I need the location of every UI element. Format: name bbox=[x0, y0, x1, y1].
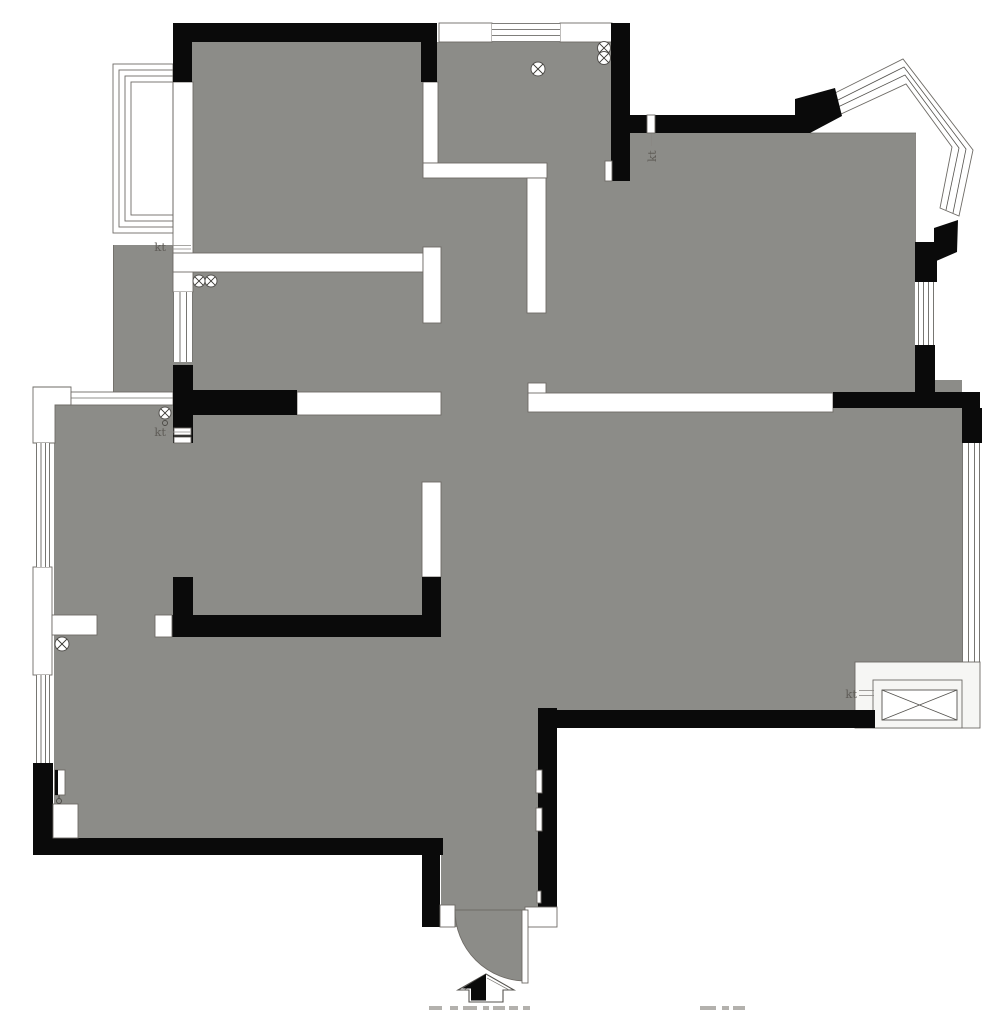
niche-southwest bbox=[53, 804, 78, 838]
floor-bedroom-2 bbox=[193, 253, 441, 392]
wall-entry-east bbox=[538, 708, 557, 907]
ac-label-top-right-group: kt bbox=[645, 150, 659, 162]
window-dining-east bbox=[962, 443, 980, 662]
window-bath-north bbox=[492, 23, 560, 42]
balcony-south-sill bbox=[71, 392, 173, 405]
wall-bedroom3-east bbox=[422, 482, 441, 577]
wall-bedroom2-east bbox=[423, 247, 441, 323]
wall-master-north bbox=[630, 115, 810, 133]
wall-master-east-lower bbox=[915, 345, 935, 392]
cropped-caption-marks bbox=[429, 1006, 745, 1010]
balcony-window bbox=[113, 64, 173, 233]
sleeve-master-north bbox=[647, 115, 655, 133]
wall-master-south bbox=[528, 393, 833, 412]
wall-bedroom2-south bbox=[173, 390, 297, 415]
floor-entry-corridor bbox=[441, 710, 538, 927]
wall-north-right-stub bbox=[421, 42, 437, 82]
ac-outdoor-unit bbox=[882, 690, 957, 720]
wall-north-left-stub bbox=[173, 42, 192, 82]
ac-label-bottom-right: kt bbox=[845, 687, 857, 701]
wall-bath-east bbox=[611, 23, 630, 181]
wall-hall-east bbox=[527, 178, 546, 313]
window-master-east bbox=[918, 282, 934, 345]
sleeve-bath-east bbox=[605, 161, 612, 181]
wall-bedroom3-south bbox=[172, 615, 441, 637]
pilaster-west-mid bbox=[33, 567, 52, 675]
drain-icon bbox=[205, 275, 217, 287]
wall-entry-west bbox=[422, 855, 440, 927]
floor-plan-page: kt kt kt kt bbox=[0, 0, 1000, 1010]
wall-bedroom3-north bbox=[297, 392, 441, 415]
ac-label-top-right: kt bbox=[645, 150, 659, 162]
wall-master-south-black bbox=[833, 392, 980, 408]
wall-master-east-upper bbox=[915, 242, 937, 282]
notch-corridor-2 bbox=[536, 808, 542, 831]
jamb-entry-right bbox=[525, 907, 557, 927]
notch-corridor-3 bbox=[537, 891, 541, 903]
window-balcony-east bbox=[173, 292, 193, 362]
wall-west-lower bbox=[33, 763, 53, 838]
drain-icon bbox=[193, 275, 205, 287]
wall-dining-east-upper bbox=[962, 408, 982, 443]
entry-door bbox=[455, 910, 528, 983]
jamb-bedroom3-door bbox=[155, 615, 172, 637]
wall-bay-upper-angle bbox=[795, 88, 842, 133]
sleeve-west-upper bbox=[174, 428, 191, 435]
sleeve-west-lower bbox=[174, 437, 191, 443]
wall-north bbox=[173, 23, 437, 42]
door-swing-arc bbox=[455, 910, 526, 981]
window-west-lower bbox=[36, 675, 50, 763]
jamb-entry-left bbox=[440, 905, 455, 927]
wall-bedroom3-east-black bbox=[422, 577, 441, 617]
wall-stub-living bbox=[52, 615, 97, 635]
door-leaf bbox=[522, 910, 528, 983]
window-west-upper bbox=[36, 443, 50, 567]
lintel-bath-north-right bbox=[560, 23, 612, 42]
radiator-edge bbox=[55, 770, 58, 795]
wall-bedroom1-east bbox=[423, 82, 438, 163]
wall-dining-south bbox=[538, 710, 875, 728]
floor-master-bedroom bbox=[630, 133, 915, 392]
ac-label-mid-left: kt bbox=[154, 425, 166, 439]
floor-balcony-strip bbox=[113, 245, 173, 392]
wall-bedroom1-south bbox=[173, 253, 423, 272]
drain-icon bbox=[531, 62, 545, 76]
lintel-bath-north-left bbox=[439, 23, 492, 42]
wall-south bbox=[33, 838, 443, 855]
ac-label-balcony: kt bbox=[154, 240, 166, 254]
drain-icon bbox=[55, 637, 69, 651]
floor-plan-svg: kt kt kt kt bbox=[0, 0, 1000, 1010]
wall-bay-lower-angle bbox=[934, 220, 958, 262]
drain-icon bbox=[598, 52, 611, 65]
wall-bath-south bbox=[423, 163, 547, 178]
drain-icon bbox=[159, 407, 171, 419]
notch-corridor-1 bbox=[536, 770, 542, 793]
